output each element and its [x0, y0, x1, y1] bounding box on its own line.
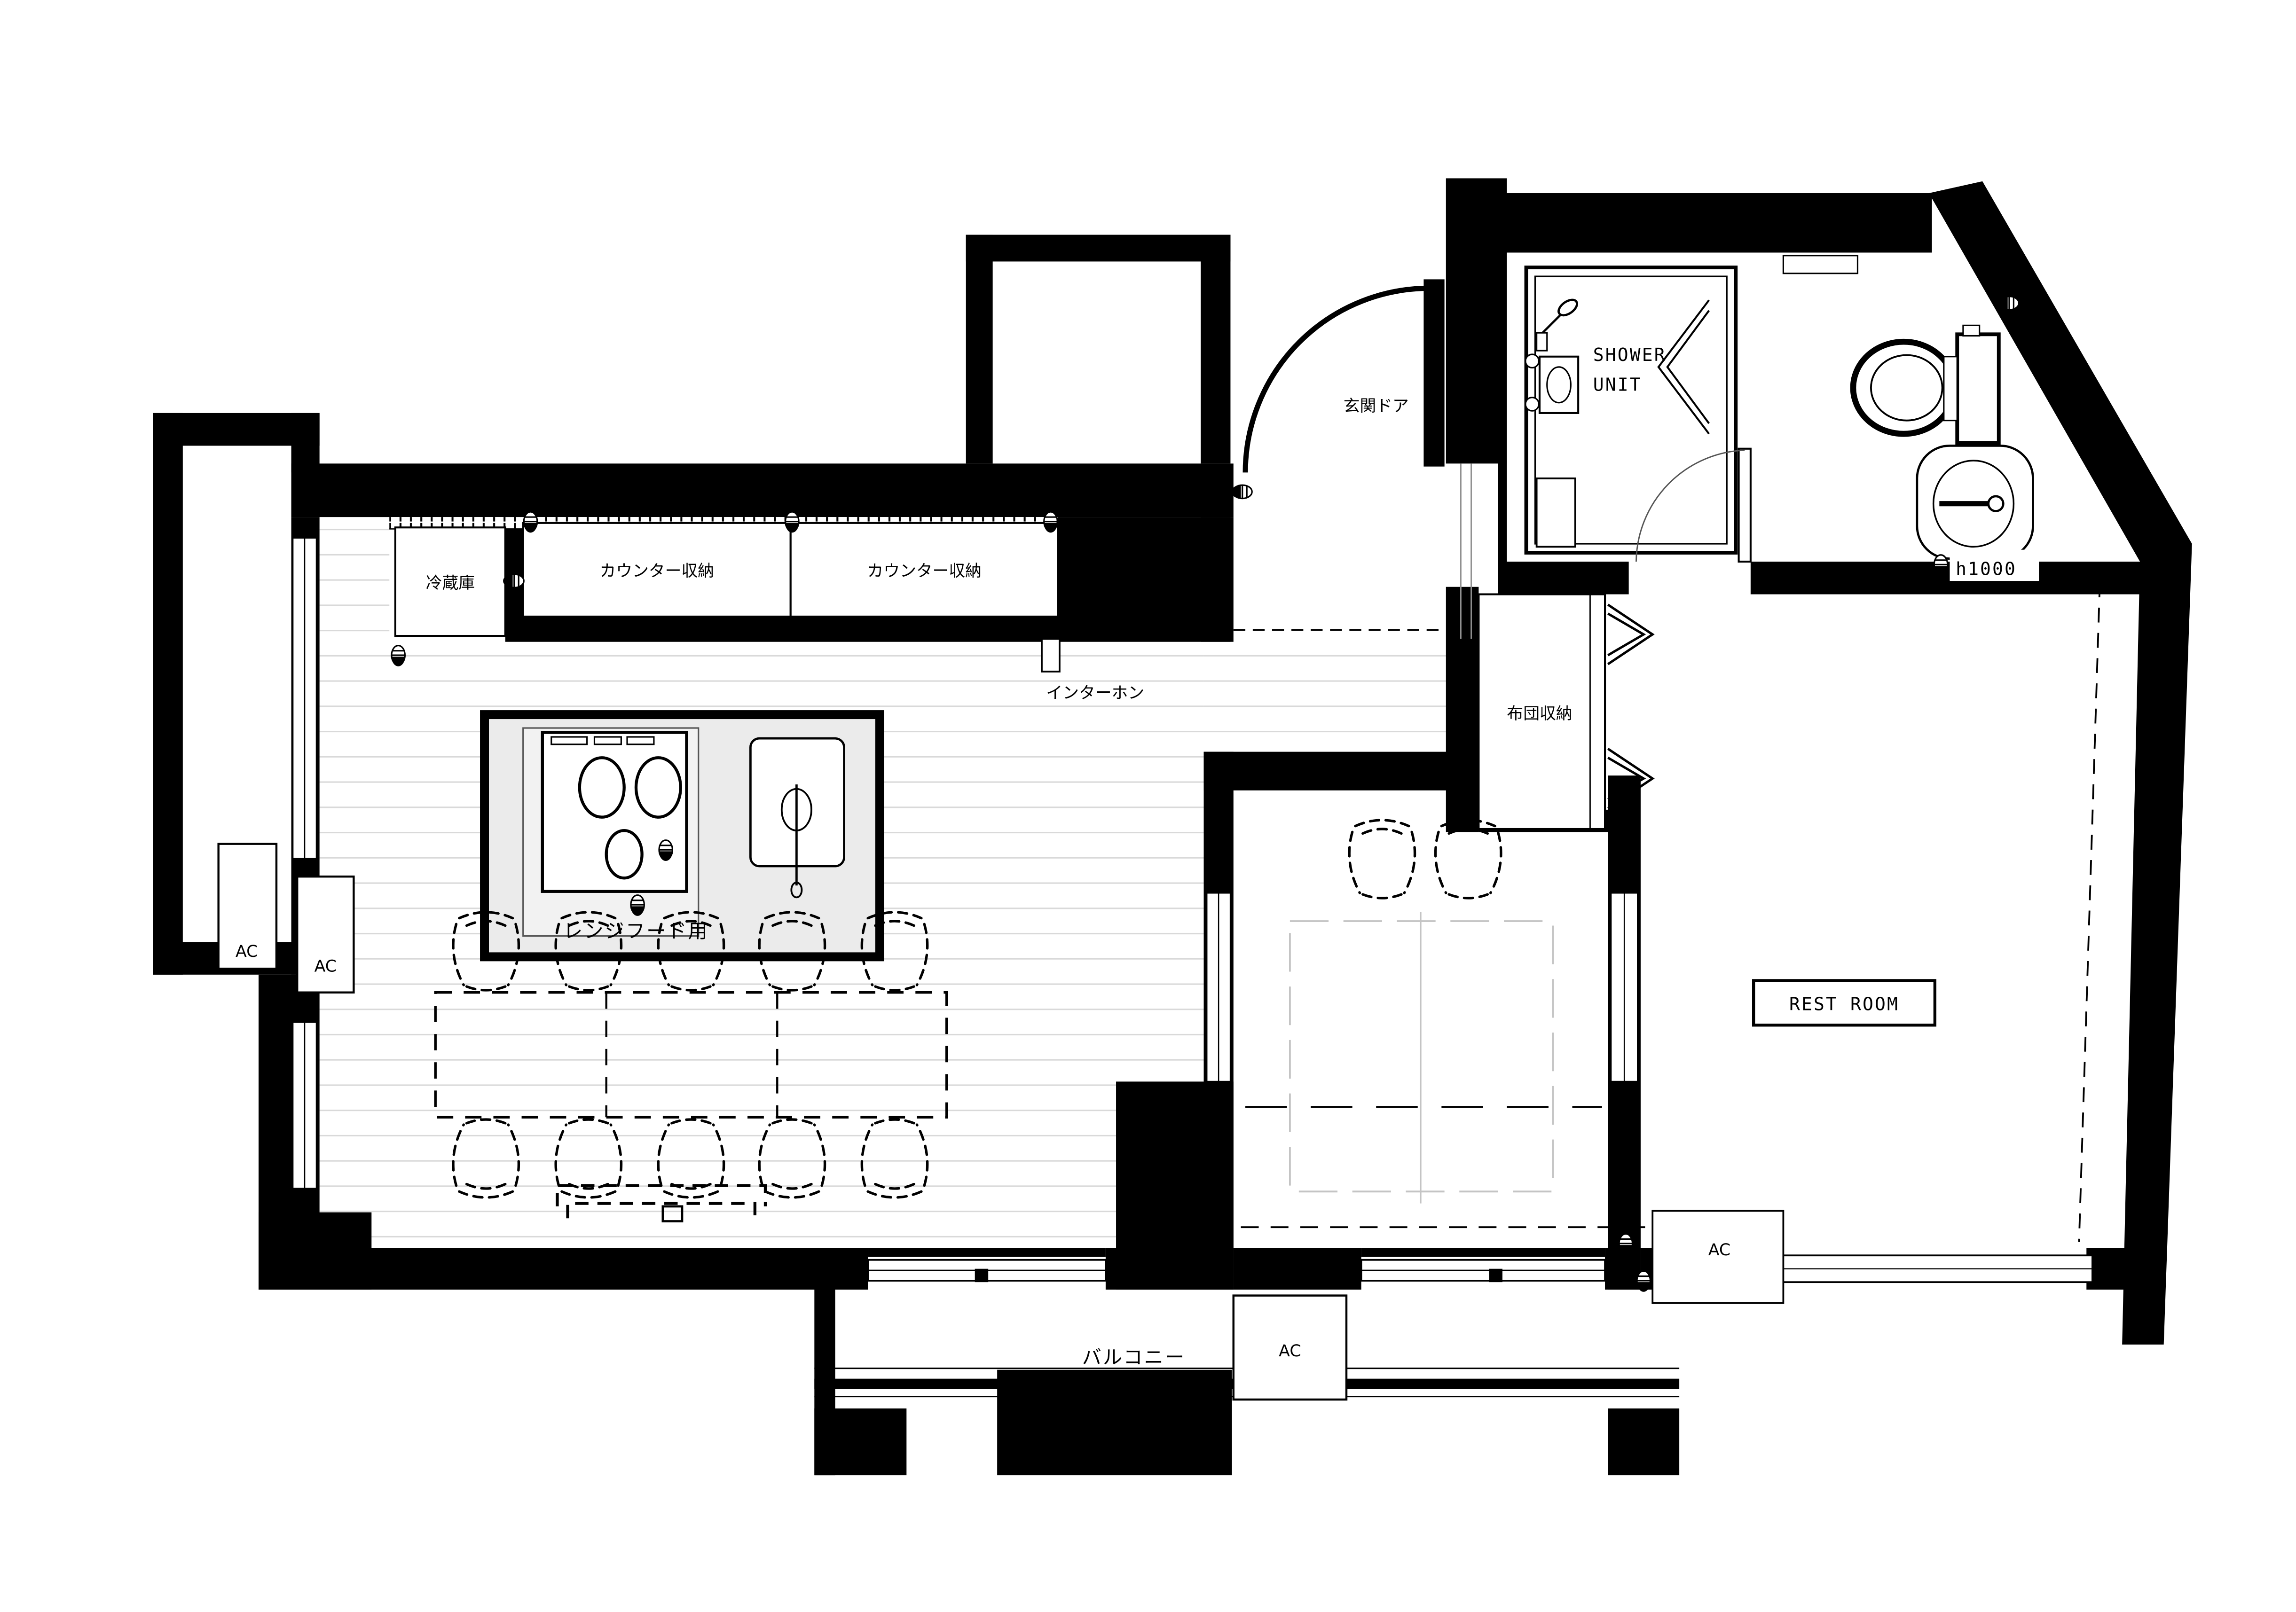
ac-restroom: AC	[1652, 1211, 1783, 1303]
height-note: h1000	[1934, 550, 2039, 581]
kitchen-island: レンジフード用	[485, 715, 880, 957]
window-restroom-bottom	[1782, 1255, 2092, 1282]
shelf-niche	[1783, 256, 1857, 274]
toilet-tank	[1957, 334, 1999, 443]
svg-text:AC: AC	[315, 957, 337, 976]
partial-wall-dashed-line	[2079, 582, 2099, 1242]
balcony-label: バルコニー	[1082, 1346, 1186, 1369]
svg-text:AC: AC	[1708, 1241, 1730, 1260]
burner-icon	[580, 758, 624, 817]
rest-room-label: REST ROOM	[1789, 994, 1899, 1015]
shower-control-panel	[1540, 357, 1578, 413]
entrance-door-leaf	[1423, 279, 1444, 466]
ac-balcony: AC	[1234, 1296, 1346, 1400]
washbasin	[1917, 446, 2033, 558]
intercom-unit	[1042, 639, 1060, 672]
window-living-balcony	[868, 1248, 1106, 1282]
stove	[543, 733, 687, 892]
svg-text:AC: AC	[236, 942, 258, 961]
rest-room: REST ROOM	[1753, 582, 2100, 1242]
svg-text:AC: AC	[1279, 1342, 1301, 1361]
shower-label-1: SHOWER	[1593, 344, 1667, 365]
shower-bench	[1537, 478, 1575, 547]
height-note-label: h1000	[1956, 558, 2017, 579]
floor-plan: 冷蔵庫 カウンター収納 カウンター収納 インターホン レンジ	[0, 0, 2296, 1612]
intercom-label: インターホン	[1046, 684, 1144, 703]
range-hood-label: レンジフード用	[563, 920, 709, 942]
bathroom: SHOWER UNIT h1000	[1525, 256, 2039, 581]
ac-left-exterior: AC	[219, 844, 276, 969]
window-left-upper	[293, 538, 317, 859]
window-left-lower	[293, 1022, 317, 1189]
shower-label-2: UNIT	[1593, 374, 1642, 395]
bathroom-door-leaf	[1739, 449, 1751, 562]
shower-unit: SHOWER UNIT	[1525, 267, 1736, 553]
counter-storage-left-label: カウンター収納	[600, 562, 714, 581]
fridge-label: 冷蔵庫	[426, 574, 475, 593]
entrance-door-label: 玄関ドア	[1344, 397, 1409, 416]
entrance-door-arc	[1245, 288, 1430, 472]
burner-icon	[606, 830, 642, 878]
futon-storage-label: 布団収納	[1507, 704, 1572, 723]
entrance: 玄関ドア	[1234, 279, 1471, 639]
window-bedroom-left	[1207, 893, 1231, 1081]
ac-living: AC	[297, 876, 354, 993]
window-bedroom-right	[1611, 893, 1638, 1081]
burner-icon	[636, 758, 681, 817]
bedroom	[1241, 820, 1769, 1227]
counter-storage-right-label: カウンター収納	[867, 562, 982, 581]
window-bedroom-balcony	[1361, 1248, 1605, 1282]
